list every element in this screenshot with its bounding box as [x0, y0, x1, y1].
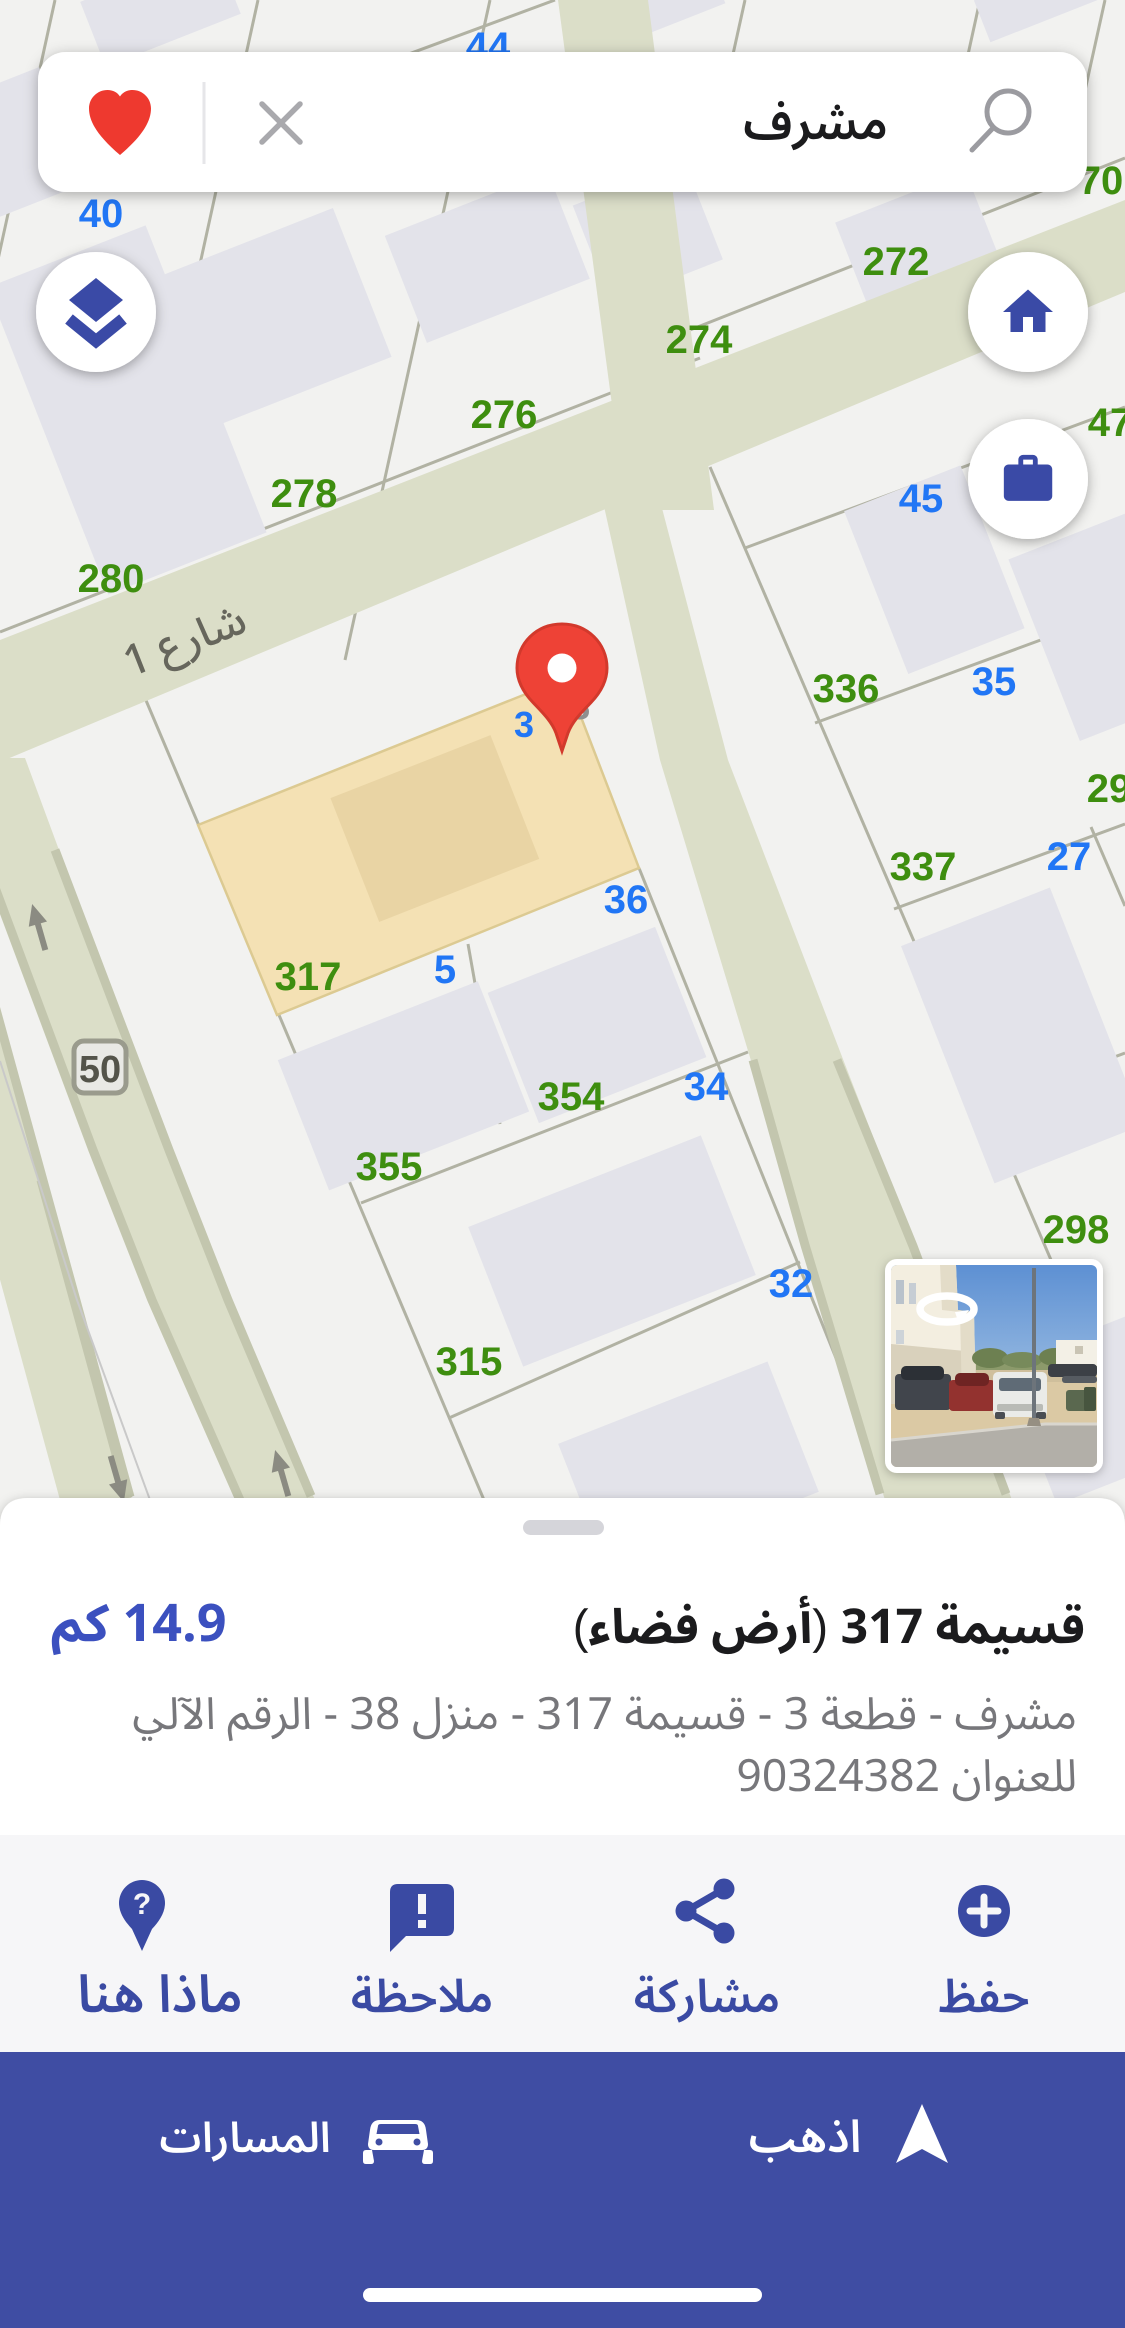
svg-text:3: 3	[514, 704, 534, 745]
svg-text:278: 278	[271, 472, 338, 516]
svg-text:280: 280	[78, 557, 145, 601]
svg-text:29: 29	[1087, 767, 1125, 811]
svg-text:272: 272	[863, 240, 930, 284]
svg-text:35: 35	[972, 660, 1017, 704]
svg-text:32: 32	[769, 1262, 814, 1306]
svg-text:274: 274	[666, 318, 733, 362]
svg-text:298: 298	[1043, 1208, 1110, 1252]
svg-text:?: ?	[133, 1888, 151, 1921]
svg-text:40: 40	[79, 192, 124, 236]
svg-text:27: 27	[1047, 835, 1092, 879]
svg-text:36: 36	[604, 878, 649, 922]
svg-text:315: 315	[436, 1340, 503, 1384]
svg-text:317: 317	[275, 955, 342, 999]
svg-text:50: 50	[79, 1049, 121, 1091]
svg-text:34: 34	[684, 1065, 729, 1109]
svg-text:45: 45	[899, 477, 944, 521]
svg-text:47: 47	[1088, 401, 1125, 445]
svg-text:337: 337	[890, 845, 957, 889]
svg-text:276: 276	[471, 393, 538, 437]
svg-text:354: 354	[538, 1075, 605, 1119]
svg-text:355: 355	[356, 1145, 423, 1189]
svg-text:5: 5	[434, 948, 456, 992]
svg-text:336: 336	[813, 667, 880, 711]
